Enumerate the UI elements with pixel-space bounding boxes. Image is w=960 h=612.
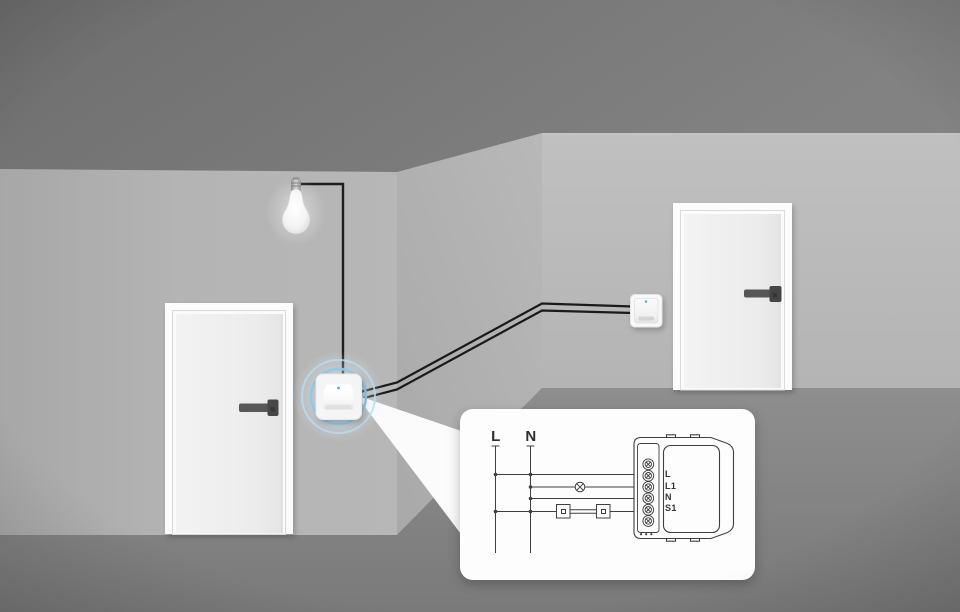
live-bus-label: L xyxy=(486,429,506,444)
lamp-symbol-icon xyxy=(575,482,585,492)
switch-symbol-icon-1 xyxy=(557,505,571,519)
neutral-bus-label: N xyxy=(521,429,541,444)
terminal-label-N: N xyxy=(665,493,683,502)
switch-status-led-icon xyxy=(645,300,648,303)
relay-module-base xyxy=(326,405,352,410)
terminal-label-L: L xyxy=(665,470,683,479)
switch-symbol-icon-2 xyxy=(597,505,611,519)
right-door-leaf xyxy=(684,214,781,388)
terminal-label-S1: S1 xyxy=(665,504,683,513)
terminal-label-L1: L1 xyxy=(665,482,683,491)
left-door-leaf xyxy=(176,314,283,534)
left-door xyxy=(165,303,293,535)
right-door xyxy=(673,203,792,390)
bulb-cap xyxy=(291,180,301,191)
scene-canvas xyxy=(0,0,960,612)
switch-rocker-slot xyxy=(639,317,655,321)
smart-relay-installation-illustration: L N L L1 N S1 xyxy=(0,0,960,612)
relay-status-led-icon xyxy=(337,387,340,390)
smart-relay-wall-unit xyxy=(293,351,385,443)
relay-module-schematic xyxy=(634,435,734,541)
wall-switch xyxy=(631,295,663,328)
